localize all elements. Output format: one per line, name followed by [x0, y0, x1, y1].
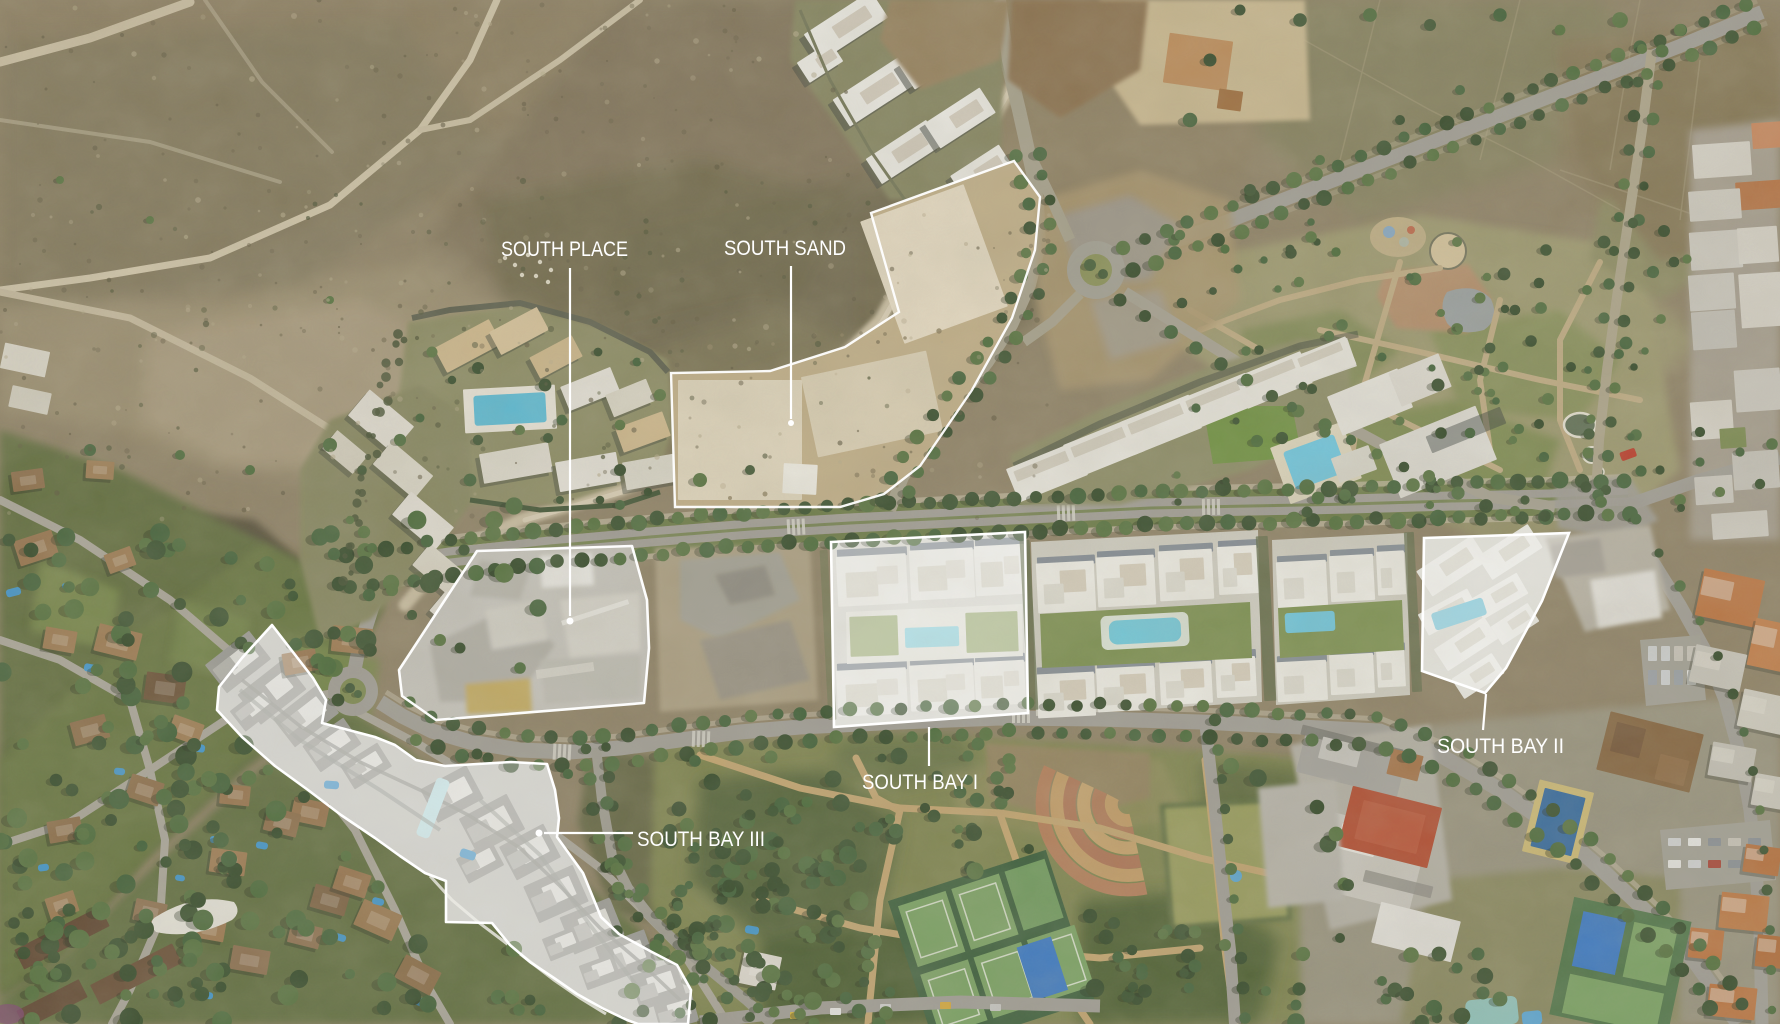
svg-text:SOUTH PLACE: SOUTH PLACE [501, 238, 628, 261]
svg-text:SOUTH BAY III: SOUTH BAY III [637, 828, 765, 851]
svg-text:SOUTH BAY II: SOUTH BAY II [1437, 735, 1564, 758]
svg-text:SOUTH BAY I: SOUTH BAY I [862, 771, 978, 794]
svg-text:SOUTH SAND: SOUTH SAND [724, 237, 846, 260]
